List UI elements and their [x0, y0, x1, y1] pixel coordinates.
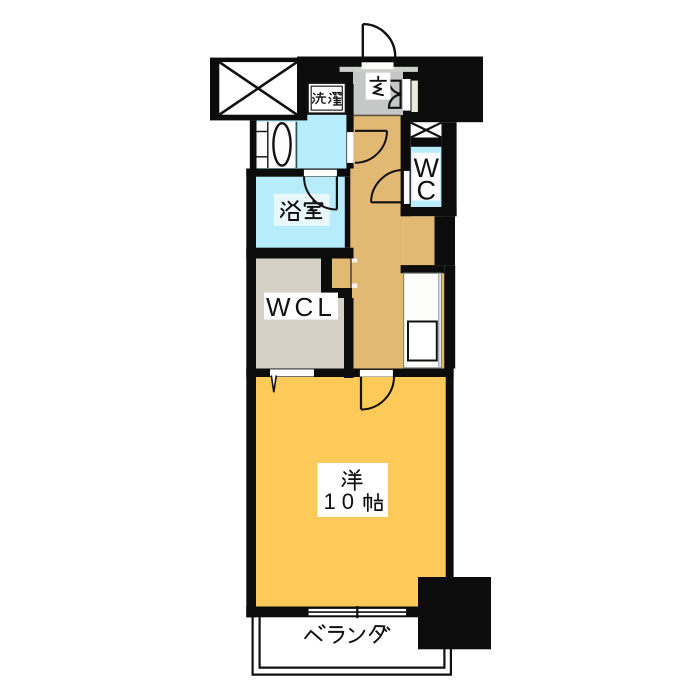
svg-text:C: C [417, 176, 437, 206]
svg-text:WCL: WCL [266, 292, 336, 322]
svg-text:10: 10 [324, 489, 360, 514]
